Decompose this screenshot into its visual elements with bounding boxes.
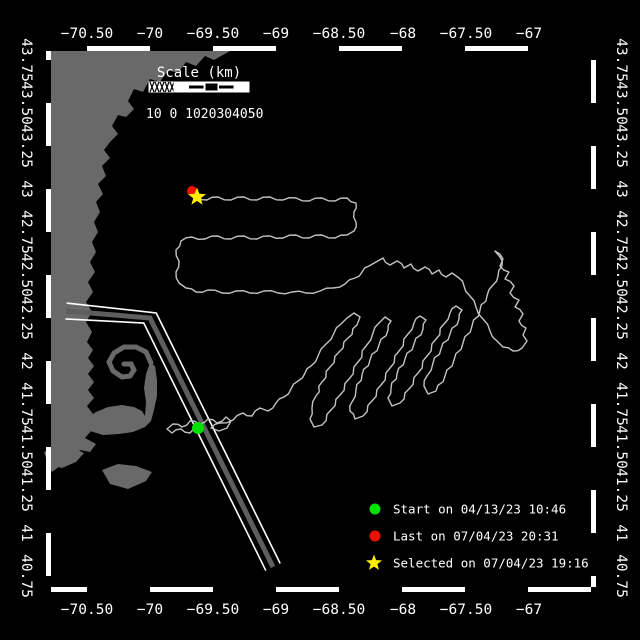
frame-dash (591, 189, 596, 232)
lat-tick-label-right: 43.50 (613, 81, 629, 125)
scalebar-segment (234, 82, 249, 92)
scalebar-bar (149, 82, 249, 92)
legend-selected-star-icon (366, 555, 382, 570)
lon-tick-label-bottom: −70 (137, 602, 163, 618)
lat-tick-label-right: 41.25 (613, 468, 629, 512)
lat-tick-label-left: 43.50 (18, 81, 34, 125)
lat-tick-label-left: 42.25 (18, 296, 34, 340)
lat-tick-label-left: 43.25 (18, 124, 34, 168)
frame-dash (591, 587, 596, 592)
legend-item: Selected on 07/04/23 19:16 (366, 555, 589, 571)
frame-dash (591, 533, 596, 576)
lon-tick-label-bottom: −68.50 (313, 602, 365, 618)
cape-cod-hook (109, 347, 151, 377)
scalebar-title: Scale (km) (157, 65, 241, 81)
legend-item: Last on 07/04/23 20:31 (370, 529, 559, 544)
lat-tick-label-left: 42.75 (18, 210, 34, 254)
scalebar-midline (189, 86, 204, 89)
lon-tick-label-bottom: −67 (516, 602, 542, 618)
frame-dash (46, 146, 51, 189)
lat-tick-label-right: 42.50 (613, 253, 629, 297)
scalebar-midline (219, 86, 234, 89)
lat-tick-label-right: 41.75 (613, 382, 629, 426)
lat-tick-label-right: 41.50 (613, 425, 629, 469)
lon-tick-label-bottom: −68 (390, 602, 416, 618)
lon-tick-label-bottom: −67.50 (440, 602, 492, 618)
frame-dash (46, 232, 51, 275)
lon-tick-label-top: −70.50 (61, 26, 113, 42)
lat-tick-label-right: 40.75 (613, 554, 629, 598)
lon-tick-label-top: −69 (263, 26, 289, 42)
scalebar-tick-labels: 10 0 1020304050 (146, 107, 263, 122)
lat-tick-label-left: 41.75 (18, 382, 34, 426)
lat-tick-label-right: 41 (613, 524, 629, 541)
lon-tick-label-top: −70 (137, 26, 163, 42)
scalebar-segment (174, 82, 189, 92)
lat-tick-label-right: 43.25 (613, 124, 629, 168)
frame-dash (46, 490, 51, 533)
lat-tick-label-left: 40.75 (18, 554, 34, 598)
legend: Start on 04/13/23 10:46Last on 07/04/23 … (366, 502, 589, 571)
lon-tick-label-bottom: −69.50 (187, 602, 239, 618)
frame-dash (402, 46, 465, 51)
legend-last-dot-icon (370, 531, 381, 542)
frame-dash (46, 318, 51, 361)
frame-dash (528, 46, 591, 51)
lat-tick-label-left: 41.25 (18, 468, 34, 512)
legend-label: Selected on 07/04/23 19:16 (393, 556, 589, 571)
legend-label: Start on 04/13/23 10:46 (393, 502, 566, 517)
lat-tick-label-right: 43 (613, 180, 629, 197)
frame-dash (465, 587, 528, 592)
lat-tick-label-left: 41 (18, 524, 34, 541)
frame-dash (213, 587, 276, 592)
lon-tick-label-bottom: −70.50 (61, 602, 113, 618)
lon-tick-label-bottom: −69 (263, 602, 289, 618)
frame-dash (46, 46, 87, 51)
start-position-marker[interactable] (192, 422, 204, 434)
lat-tick-label-left: 42.50 (18, 253, 34, 297)
frame-dash (591, 447, 596, 490)
shipping-lane-stripe (66, 311, 273, 567)
lat-tick-label-right: 42 (613, 352, 629, 369)
lane-layer (65, 303, 280, 571)
island-nantucket (102, 464, 152, 489)
frame-dash (150, 46, 213, 51)
lat-tick-label-left: 41.50 (18, 425, 34, 469)
scalebar: Scale (km) 10 0 1020304050 (146, 65, 263, 122)
frame-dash (591, 361, 596, 404)
frame-dash (46, 404, 51, 447)
lon-tick-label-top: −68 (390, 26, 416, 42)
lat-tick-label-right: 42.75 (613, 210, 629, 254)
map-plot[interactable]: −70.50−70.50−70−70−69.50−69.50−69−69−68.… (0, 0, 640, 640)
frame-dash (591, 46, 596, 60)
frame-dash (591, 275, 596, 318)
legend-item: Start on 04/13/23 10:46 (370, 502, 567, 517)
lat-tick-label-right: 43.75 (613, 38, 629, 82)
lon-tick-label-top: −67.50 (440, 26, 492, 42)
glider-track (167, 197, 527, 433)
lon-tick-label-top: −67 (516, 26, 542, 42)
frame-dash (276, 46, 339, 51)
scalebar-outline-fill (206, 84, 218, 91)
lat-tick-label-left: 43 (18, 180, 34, 197)
lat-tick-label-left: 43.75 (18, 38, 34, 82)
lat-tick-label-right: 42.25 (613, 296, 629, 340)
frame-dash (591, 103, 596, 146)
lon-tick-label-top: −68.50 (313, 26, 365, 42)
legend-start-dot-icon (370, 504, 381, 515)
map-canvas: −70.50−70.50−70−70−69.50−69.50−69−69−68.… (0, 0, 640, 640)
track-layer (167, 197, 527, 433)
frame-dash (46, 576, 51, 592)
lon-tick-label-top: −69.50 (187, 26, 239, 42)
lat-tick-label-left: 42 (18, 352, 34, 369)
frame-dash (87, 587, 150, 592)
legend-label: Last on 07/04/23 20:31 (393, 529, 559, 544)
frame-dash (46, 60, 51, 103)
frame-dash (339, 587, 402, 592)
